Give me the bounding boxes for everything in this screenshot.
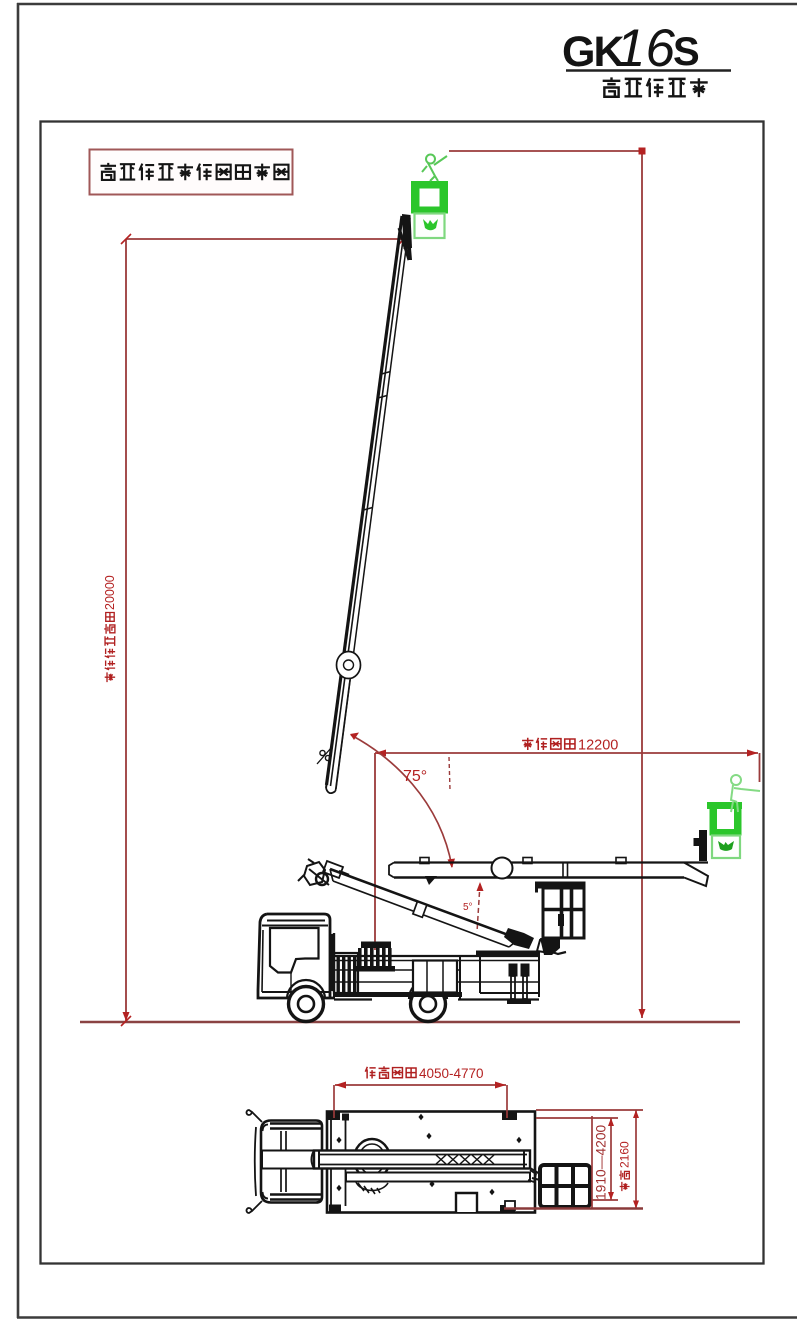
svg-text:20000: 20000	[103, 575, 117, 610]
svg-text:12200: 12200	[578, 738, 618, 754]
svg-text:75°: 75°	[403, 768, 427, 785]
svg-text:16: 16	[616, 19, 675, 78]
svg-text:1910—4200: 1910—4200	[594, 1124, 609, 1200]
svg-text:2160: 2160	[618, 1141, 632, 1168]
svg-text:4050-4770: 4050-4770	[419, 1066, 484, 1081]
svg-text:S: S	[673, 30, 700, 74]
svg-text:5°: 5°	[463, 902, 473, 913]
